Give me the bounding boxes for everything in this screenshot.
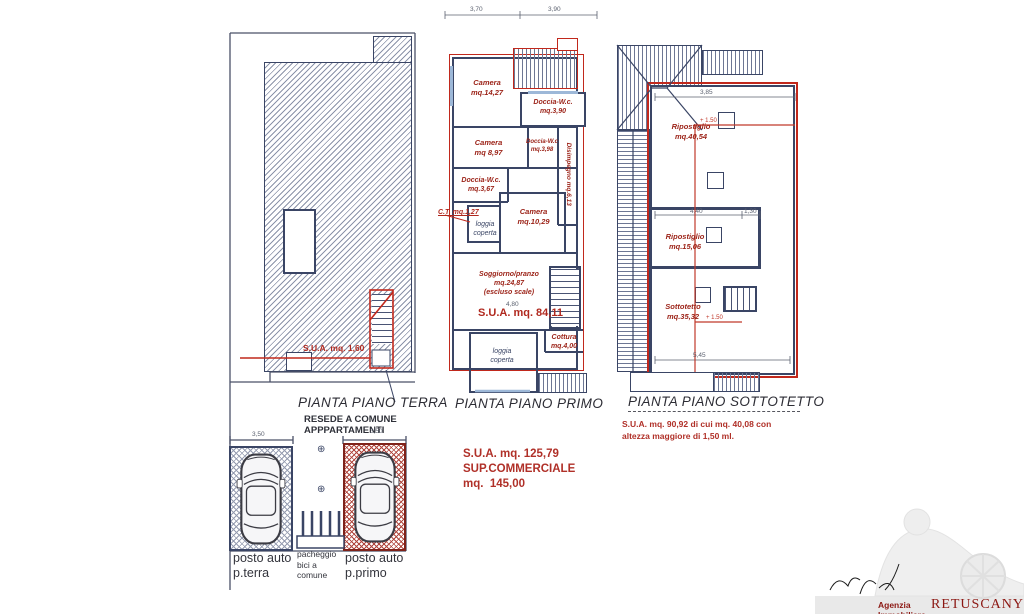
room-doccia3: Doccia-W.c. mq.3,67 <box>455 176 507 194</box>
survey-point-icon: ⊕ <box>317 484 325 495</box>
label-bici: pacheggio bici a comune <box>297 549 336 581</box>
sotto-dim-mid-right: 1,30 <box>744 208 757 215</box>
height-mark-upper: + 1.50 <box>700 118 717 124</box>
terra-sua-label: S.U.A. mq. 1,60 <box>303 343 364 353</box>
room-disimpegno: Disimpegno mq.6,13 <box>564 129 572 219</box>
agency-watermark-text: Agenzia Immobiliare RETUSCANY <box>878 597 1024 614</box>
floorplan-sheet: S.U.A. mq. 1,60 PIANTA PIANO TERRA RESED… <box>0 0 1024 614</box>
room-ct: C.T. mq.1,27 <box>438 209 479 216</box>
bike-rack-icon <box>296 510 346 550</box>
sotto-dim-bottom: 5,45 <box>693 352 706 359</box>
primo-dim-top-left: 3,70 <box>470 6 483 13</box>
label-posto-terra: posto auto p.terra <box>233 551 291 581</box>
primo-bottom-hatch <box>538 373 587 393</box>
sotto-summary: S.U.A. mq. 90,92 di cui mq. 40,08 con al… <box>622 419 771 443</box>
room-soggiorno: Soggiorno/pranzo mq.24,87 (escluso scale… <box>473 270 545 297</box>
room-camera2: Camera mq 8,97 <box>466 138 511 158</box>
primo-plan-title: PIANTA PIANO PRIMO <box>455 396 603 411</box>
room-cottura: Cottura mq.4,00 <box>543 333 585 351</box>
room-doccia1: Doccia-W.c. mq.3,90 <box>524 98 582 116</box>
sotto-dim-top: 3,85 <box>700 89 713 96</box>
terra-dim-right-spot: 3,50 <box>370 428 383 435</box>
agency-prefix: Agenzia Immobiliare <box>878 600 927 614</box>
label-posto-primo: posto auto p.primo <box>345 551 403 581</box>
room-doccia2: Doccia-W.c mq.3,98 <box>524 139 560 155</box>
room-camera3: Camera mq.10,29 <box>511 207 556 227</box>
sotto-plan-title: PIANTA PIANO SOTTOTETTO <box>628 394 824 409</box>
height-mark-lower: + 1.50 <box>706 315 723 321</box>
room-sottotetto: Sottotetto mq.35,32 <box>660 302 706 322</box>
car-primo-icon <box>348 450 402 544</box>
survey-point-icon: ⊕ <box>317 444 325 455</box>
room-loggia-inf: loggia coperta <box>486 347 518 365</box>
terra-dim-left-spot: 3,50 <box>252 431 265 438</box>
primo-summary: S.U.A. mq. 125,79 SUP.COMMERCIALE mq. 14… <box>463 447 575 492</box>
sotto-title-underline <box>628 411 800 412</box>
primo-dim-top-right: 3,90 <box>548 6 561 13</box>
room-loggia-sup: loggia coperta <box>469 220 501 238</box>
room-camera1: Camera mq.14,27 <box>462 78 512 98</box>
room-ripostiglio1: Ripostiglio mq.40,54 <box>668 122 714 142</box>
room-ripostiglio2: Ripostiglio mq.15,06 <box>662 232 708 252</box>
car-terra-icon <box>234 452 288 546</box>
sotto-dim-mid-left: 4,40 <box>690 208 703 215</box>
agency-name: RETUSCANY <box>931 597 1024 613</box>
terra-plan-title: PIANTA PIANO TERRA <box>298 395 448 410</box>
agency-watermark-graphic <box>815 470 1024 614</box>
primo-sua-plan-label: S.U.A. mq. 84,11 <box>478 307 563 319</box>
